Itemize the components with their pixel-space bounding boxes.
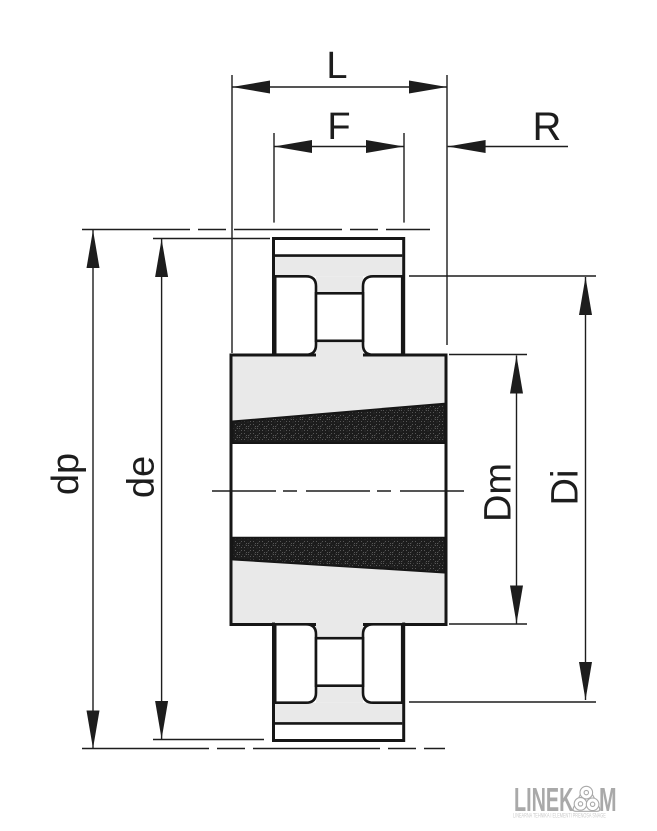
svg-text:LINEARNA TEHNIKA I ELEMENTI PR: LINEARNA TEHNIKA I ELEMENTI PRENOSA SNAG… xyxy=(513,813,606,820)
svg-text:Di: Di xyxy=(545,470,587,506)
svg-text:de: de xyxy=(121,456,163,498)
svg-text:dp: dp xyxy=(45,453,87,495)
svg-text:Dm: Dm xyxy=(478,463,520,522)
svg-text:R: R xyxy=(533,105,562,149)
svg-text:F: F xyxy=(327,106,350,148)
svg-text:L: L xyxy=(326,45,347,87)
